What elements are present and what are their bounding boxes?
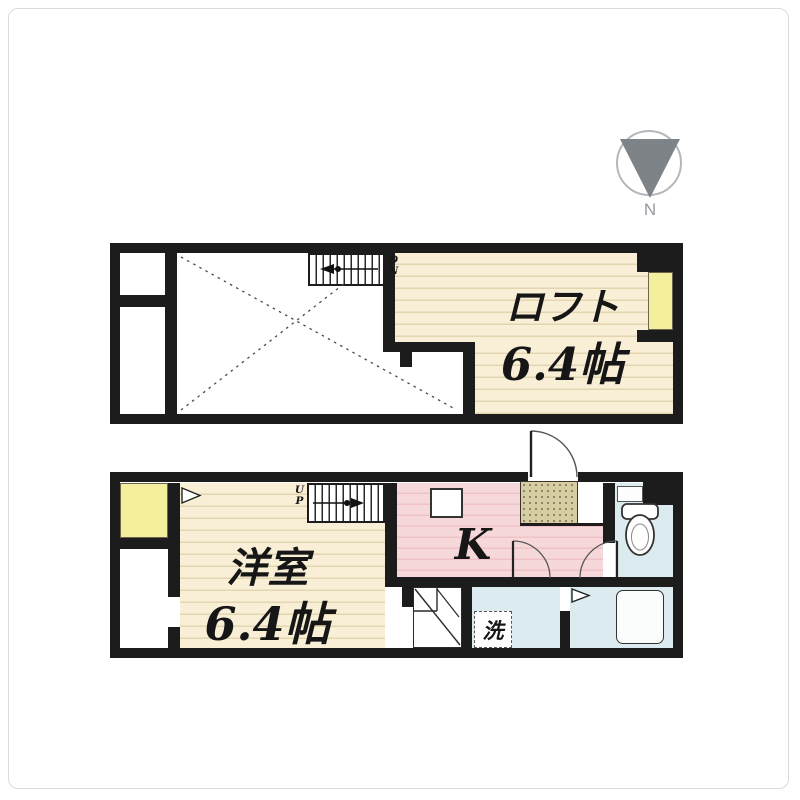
western-room-size: 6.4帖 — [155, 588, 380, 654]
wall — [560, 611, 570, 648]
floor-plan-image: N DN ロフト 6.4帖 UP 洗 洋室 6.4帖 K — [0, 0, 800, 800]
north-arrow-icon — [620, 139, 680, 198]
wall — [462, 577, 472, 652]
entrance-hall — [578, 483, 603, 523]
wall — [402, 587, 413, 607]
stairs-down — [308, 253, 385, 286]
washing-machine-box: 洗 — [474, 611, 512, 648]
wall-pillar — [637, 243, 683, 272]
wall — [603, 483, 615, 543]
entrance-mat — [520, 481, 578, 524]
wall-pillar — [643, 472, 683, 505]
stairs-dn-label: DN — [387, 255, 400, 277]
wall — [165, 253, 177, 414]
wall — [400, 352, 412, 367]
compass-north-label: N — [630, 200, 670, 220]
toilet-counter — [617, 486, 643, 502]
kitchen-label: K — [443, 520, 503, 569]
closet-window — [120, 483, 168, 538]
under-stairs-steps — [413, 587, 462, 648]
wall — [520, 523, 603, 526]
wall — [385, 483, 397, 577]
bathtub — [616, 590, 664, 644]
wall — [385, 577, 683, 587]
stairs-up — [307, 483, 385, 523]
wall — [120, 295, 165, 307]
western-room-label: 洋室 — [160, 534, 375, 594]
stairs-up-label: UP — [293, 485, 306, 507]
loft-room-size: 6.4帖 — [445, 328, 680, 393]
washing-machine-label: 洗 — [483, 615, 504, 645]
loft-room-label: ロフト — [450, 276, 675, 331]
kitchen-sink — [430, 488, 463, 518]
